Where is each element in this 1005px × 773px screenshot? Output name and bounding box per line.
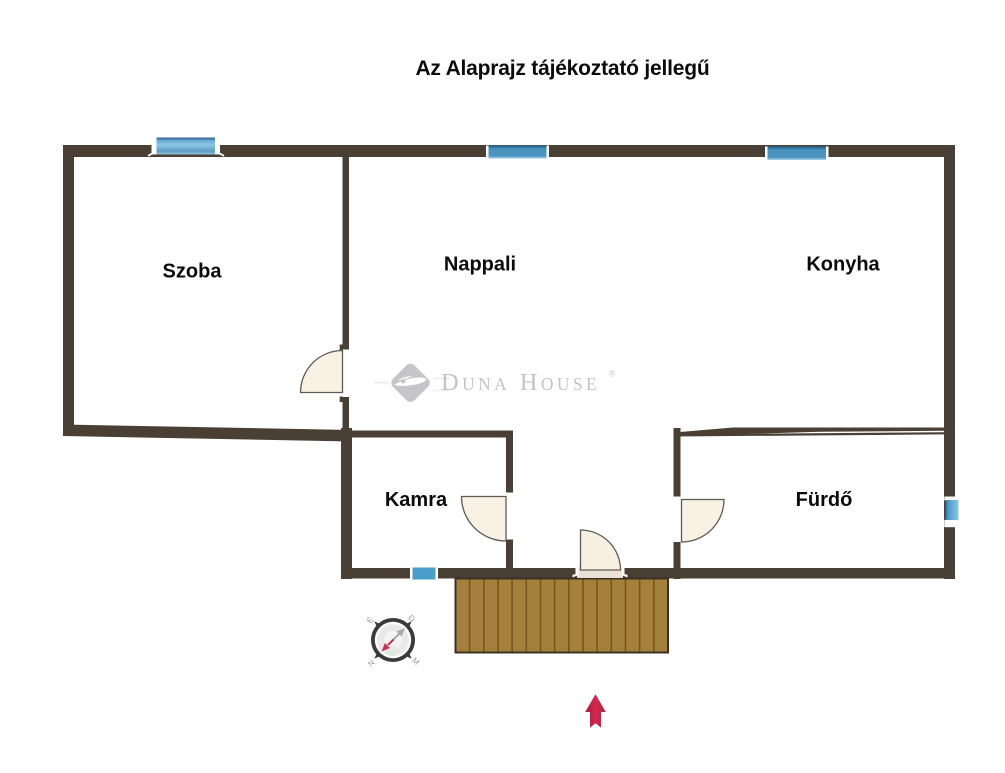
svg-text:D: D — [406, 613, 417, 624]
svg-text:Fürdő: Fürdő — [796, 489, 853, 511]
svg-text:É: É — [365, 615, 375, 625]
svg-text:N: N — [366, 658, 377, 669]
svg-text:Nappali: Nappali — [444, 254, 516, 276]
svg-text:DUNA HOUSE: DUNA HOUSE — [441, 369, 600, 396]
svg-text:Kamra: Kamra — [385, 489, 448, 511]
svg-text:®: ® — [609, 369, 616, 380]
svg-text:Szoba: Szoba — [163, 261, 223, 283]
svg-text:Az Alaprajz tájékoztató jelleg: Az Alaprajz tájékoztató jellegű — [415, 57, 709, 80]
svg-text:M: M — [410, 656, 421, 667]
svg-text:Konyha: Konyha — [806, 254, 880, 276]
